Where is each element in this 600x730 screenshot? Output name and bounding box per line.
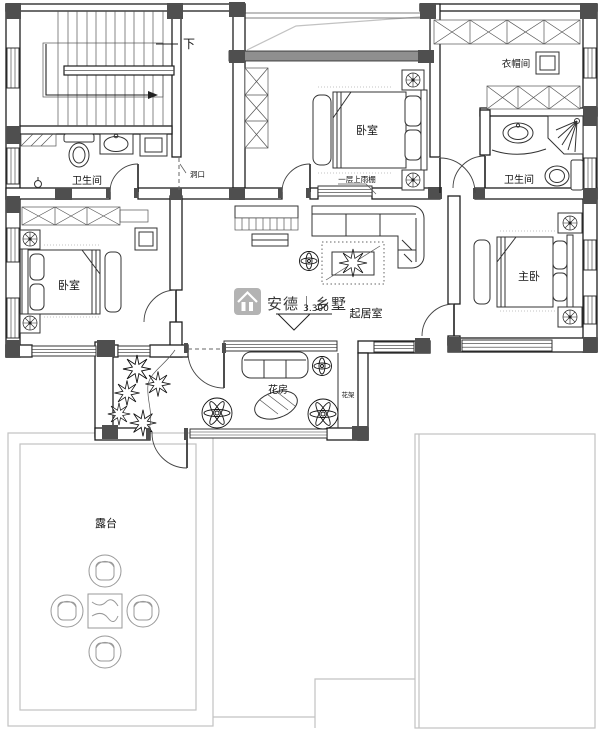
pillow xyxy=(405,96,421,126)
label-flower-rack: 花架 xyxy=(342,390,356,399)
headboard xyxy=(22,248,28,316)
tv-cabinet xyxy=(235,206,298,218)
pillow xyxy=(553,273,567,301)
terrace-chair xyxy=(89,636,121,668)
terrace-table xyxy=(88,594,122,628)
bedroom-left-furniture xyxy=(20,207,157,333)
flower-room-furniture xyxy=(108,350,338,436)
label-bedroom-top: 卧室 xyxy=(356,123,378,137)
sofa xyxy=(312,206,424,268)
plant xyxy=(202,398,232,428)
toilet-tank xyxy=(571,160,583,190)
labels: 下 卫生间 洞口 卧室 一层上雨棚 衣帽间 卫生间 卧室 主卧 起居室 3.30… xyxy=(58,37,540,530)
label-flower-room: 花房 xyxy=(268,383,288,396)
shower xyxy=(548,116,583,154)
label-canopy-note: 一层上雨棚 xyxy=(338,174,376,184)
label-terrace: 露台 xyxy=(95,516,117,530)
label-master-bedroom: 主卧 xyxy=(518,270,540,283)
bench xyxy=(105,252,121,312)
bedroom-top-furniture xyxy=(245,68,427,190)
planter-palms xyxy=(108,355,171,436)
label-bath-right: 卫生间 xyxy=(504,173,534,186)
potted-plant xyxy=(300,252,319,271)
stool xyxy=(536,52,559,74)
headboard xyxy=(421,90,427,170)
floor-drain xyxy=(35,181,42,188)
label-bath-left: 卫生间 xyxy=(72,174,102,187)
duct-hatch xyxy=(21,134,56,146)
label-cloakroom: 衣帽间 xyxy=(502,58,531,70)
terrace-chair xyxy=(51,595,83,627)
brand-text: 安德｜乡墅 xyxy=(267,295,347,313)
balcony-parapet-wall xyxy=(229,51,434,61)
terrace-furniture xyxy=(51,555,159,668)
headboard xyxy=(567,235,573,309)
opening-leader-line xyxy=(180,164,186,173)
brand-watermark: 安德｜乡墅 xyxy=(234,288,347,315)
terrace-chair xyxy=(89,555,121,587)
cabinet xyxy=(140,134,167,156)
bench xyxy=(474,240,490,304)
living-room-furniture xyxy=(235,206,424,284)
label-bedroom-left: 卧室 xyxy=(58,278,80,292)
plant xyxy=(308,399,338,429)
rug xyxy=(322,242,384,284)
pillow xyxy=(30,254,44,280)
side-table xyxy=(135,228,157,250)
flower-room-sofa xyxy=(242,352,308,378)
bench xyxy=(313,95,331,165)
pillow xyxy=(553,241,567,269)
balcony-roof-slope xyxy=(247,16,433,50)
label-stairs-down: 下 xyxy=(183,37,195,51)
potted-plant xyxy=(313,357,332,376)
floor-plan-page: 下 卫生间 洞口 卧室 一层上雨棚 衣帽间 卫生间 卧室 主卧 起居室 3.30… xyxy=(0,0,600,730)
terrace-chair xyxy=(127,595,159,627)
pillow xyxy=(405,130,421,160)
toilet-tank xyxy=(64,134,94,142)
floor-plan-canvas: 下 卫生间 洞口 卧室 一层上雨棚 衣帽间 卫生间 卧室 主卧 起居室 3.30… xyxy=(0,0,600,730)
label-living-room: 起居室 xyxy=(350,306,383,320)
label-wall-opening: 洞口 xyxy=(190,170,205,179)
pillow xyxy=(30,284,44,310)
elevation-marker xyxy=(276,314,332,330)
